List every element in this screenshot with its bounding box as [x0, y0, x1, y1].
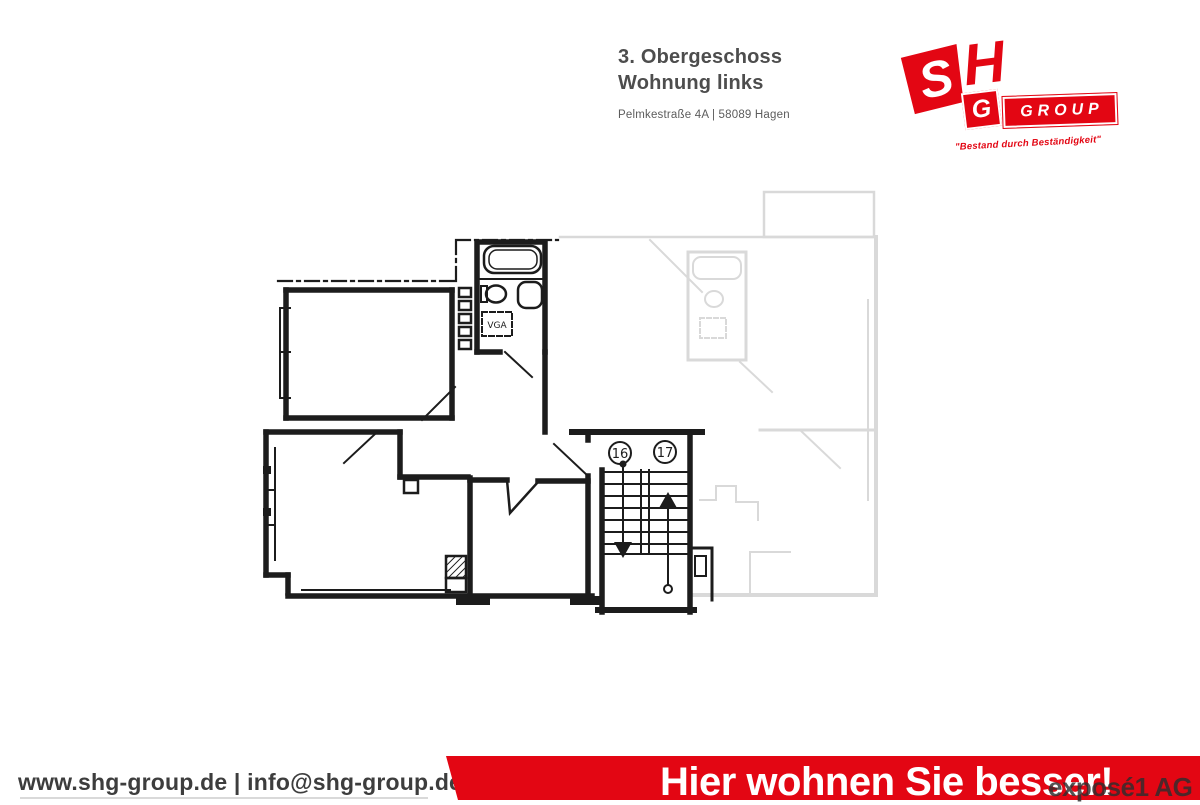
duct-box: VGA — [482, 312, 512, 336]
toilet — [481, 286, 506, 303]
expose-watermark: exposé1 AG — [1048, 772, 1192, 803]
sink — [518, 282, 542, 308]
stair-arrow-down — [614, 461, 632, 559]
stair-number-right-badge: 17 — [654, 441, 676, 463]
neighbor-faded-plan — [560, 192, 876, 595]
chimney-shaft — [446, 556, 466, 592]
stair-arrow-up — [659, 492, 677, 593]
footer-contact: www.shg-group.de | info@shg-group.de — [18, 769, 462, 796]
kitchen — [446, 478, 588, 596]
duct-label: VGA — [487, 321, 507, 331]
stair-number-left: 16 — [612, 447, 629, 462]
bathroom: VGA — [477, 242, 545, 377]
footer-underline — [20, 797, 428, 799]
floor-plan: VGA — [0, 0, 1200, 800]
stair-number-left-badge: 16 — [609, 442, 631, 464]
stair-number-right: 17 — [657, 446, 674, 461]
footer-slogan: Hier wohnen Sie besser! — [660, 760, 1113, 805]
stair-annex — [690, 548, 712, 600]
floor-plan-svg: VGA — [0, 0, 1200, 800]
apartment-plan: VGA — [263, 240, 712, 612]
staircase: 16 17 — [598, 432, 694, 612]
bathtub — [484, 246, 541, 273]
room-top-left — [280, 290, 452, 418]
radiator-strip — [459, 288, 471, 349]
